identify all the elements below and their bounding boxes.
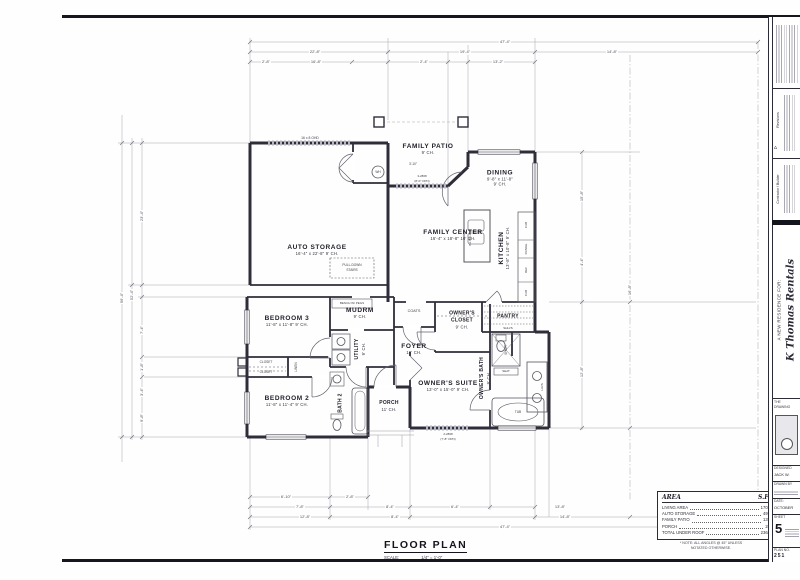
revision-delta-icon: Δ — [774, 145, 777, 150]
dim-label: 9'-8" — [140, 413, 145, 423]
sheet-number: 5 — [775, 521, 782, 536]
pulldown-stairs-label-2: STAIRS — [346, 268, 357, 272]
area-table-header: AREA S.F. — [662, 494, 770, 503]
walls — [238, 143, 549, 437]
designed-label: DESIGNED — [774, 467, 792, 471]
porch-steps — [366, 431, 414, 447]
titleblock-divider — [772, 398, 800, 399]
titleblock-divider — [772, 158, 800, 159]
room-label-owners-suite: OWNER'S SUITE 13'-0" x 15'-0" 9' CH. — [418, 380, 478, 392]
blueprint-sheet: AUTO STORAGE 16'-4" x 22'-8" 9' CH. FAMI… — [0, 0, 800, 580]
dim-label: 15'-8" — [580, 190, 585, 202]
room-label-bedroom2: BEDROOM 2 11'-8" x 11'-4" 9' CH. — [265, 395, 310, 407]
dim-label: 56'-4" — [120, 292, 125, 304]
patio-door-label: 3-2868 — [417, 174, 426, 178]
room-label-owners-bath: OWNER'S BATH 9' CH. — [479, 357, 491, 399]
lavs-label: LAVS — [540, 383, 544, 390]
dimension-lines — [118, 38, 758, 530]
room-label-pantry: PANTRY — [497, 314, 519, 321]
dim-label: 19'-4" — [459, 50, 471, 55]
room-label-bedroom3: BEDROOM 3 11'-8" x 11'-8" 9' CH. — [265, 315, 310, 327]
water-heater-label: WH — [375, 170, 380, 174]
sheet-border-top — [62, 15, 800, 18]
dim-label: 2'-8" — [261, 60, 271, 65]
room-label-utility: UTILITY 9' CH. — [354, 339, 366, 360]
closet-label-1: CLOSET — [260, 360, 273, 364]
brand-line2: DRAWING — [774, 406, 790, 410]
sheet-label: SHEET — [774, 516, 785, 520]
room-label-bath2: BATH 2 — [338, 393, 345, 413]
titleblock-thick-divider — [772, 220, 800, 225]
revisions-lines — [784, 95, 796, 151]
room-label-family-center: FAMILY CENTER 16'-4" x 18'-8" 10' CH. — [423, 229, 482, 241]
titleblock-divider — [772, 88, 800, 89]
island-label: ISL BELOW — [468, 230, 472, 246]
seat-label: SEAT — [502, 369, 510, 373]
room-label-mudrm: MUDRM 9' CH. — [346, 307, 374, 319]
room-label-foyer: FOYER 10' CH. — [401, 343, 426, 355]
page-title: FLOOR PLAN — [384, 539, 467, 553]
disclaimer-text-block — [776, 25, 798, 83]
dim-label: 12'-8" — [299, 515, 311, 520]
scale-value: 1/4" = 1'-0" — [421, 555, 442, 560]
cab-label-1: CAB — [524, 222, 528, 228]
dim-label: 13'-2" — [492, 60, 504, 65]
dim-label: 6'-10" — [280, 495, 292, 500]
room-label-kitchen: KITCHEN 13'-8" x 10'-8" 9' CH. — [498, 227, 510, 270]
dim-label: 22'-8" — [309, 50, 321, 55]
linen-label: LINEN — [294, 362, 298, 371]
dim-label: 3'-4" — [140, 387, 145, 397]
dim-label: 2'-8" — [345, 495, 355, 500]
area-header-name: AREA — [662, 494, 681, 501]
coats-label: COATS — [408, 309, 421, 313]
dim-label: 47'-4" — [499, 525, 511, 530]
dim-label: 7'-4" — [140, 325, 145, 335]
pulldown-stairs-label-1: PULL-DOWN — [342, 263, 361, 267]
dim-label: 1'-8" — [140, 362, 145, 372]
closet-label-2: CLOSET — [260, 370, 273, 374]
date-label: DATE: — [774, 500, 784, 504]
scale-label: SCALE: — [384, 555, 399, 560]
room-label-auto-storage: AUTO STORAGE 16'-4" x 22'-8" 9' CH. — [287, 244, 346, 256]
area-table: AREA S.F. LIVING AREA1702 AUTO STORAGE49… — [657, 491, 775, 540]
angles-note: * NOTE: ALL ANGLES @ 45° UNLESS NOTATED … — [652, 541, 770, 550]
dim-label: 14'-8" — [559, 515, 571, 520]
patio-depth-dim: 3'-10" — [409, 162, 417, 166]
dim-label: 12'-8" — [580, 366, 585, 378]
bench-label: BENCH W/ PEGS — [340, 301, 364, 305]
cab-label-2: CAB — [524, 290, 528, 296]
ref-label: REF — [524, 267, 528, 273]
plan-number-value: 251 — [774, 554, 785, 558]
dimension-ticks — [120, 40, 760, 529]
drawn-by-value-illegible — [774, 490, 798, 495]
dim-label: 4'-4" — [580, 257, 585, 267]
dim-label: 52'-4" — [130, 289, 135, 301]
designed-value: JACK W. — [774, 473, 790, 477]
dim-label: 16'-8" — [628, 284, 633, 296]
doors — [310, 154, 502, 410]
contractor-lines — [784, 165, 796, 213]
door-openings — [312, 152, 502, 410]
dim-label: 13'-8" — [554, 505, 566, 510]
dim-label: 16'-8" — [310, 60, 322, 65]
suite-window-label: 2-2868 — [443, 432, 452, 436]
room-label-porch: PORCH 11' CH. — [379, 400, 399, 412]
suite-window-opening-label: (7'-8" OPN) — [440, 437, 455, 441]
drawn-by-label: DRAWN BY — [774, 483, 792, 487]
dim-label: 23'-4" — [140, 210, 145, 222]
dim-label: 7'-8" — [295, 505, 305, 510]
table-row: TOTAL UNDER ROOF2364 — [662, 530, 770, 536]
residence-for-label: A NEW RESIDENCE FOR: — [777, 280, 782, 341]
dim-label: 8'-4" — [385, 505, 395, 510]
sheet-of-illegible — [785, 529, 799, 537]
titleblock: Revisions Δ Contractor / Builder A NEW R… — [768, 17, 800, 562]
room-label-family-patio: FAMILY PATIO 9' CH. — [402, 143, 453, 155]
tub-label: TUB — [515, 410, 521, 414]
patio-door-opening-label: (8'-0" OPN) — [414, 179, 429, 183]
garage-door-label: 16 x 8 OHD — [301, 136, 319, 140]
dim-label: 6'-4" — [450, 505, 460, 510]
drawing-title-block: FLOOR PLAN SCALE: 1/4" = 1'-0" — [384, 535, 467, 560]
logo-circle-icon — [781, 438, 793, 450]
date-value: OCTOBER — [774, 506, 793, 510]
shower-label: SHWR — [504, 345, 508, 355]
dim-label: 47'-4" — [499, 40, 511, 45]
shelves-label: SHLVS — [503, 326, 513, 330]
client-name: K Thomas Rentals — [786, 259, 797, 361]
fixtures — [249, 166, 547, 434]
dim-label: 14'-8" — [606, 50, 618, 55]
revisions-label: Revisions — [776, 112, 780, 128]
range-label: RANGE — [524, 244, 528, 255]
room-label-owners-closet: OWNER'S CLOSET 9' CH. — [445, 311, 479, 330]
designer-logo — [775, 415, 798, 455]
dim-label: 2'-4" — [419, 60, 429, 65]
contractor-label: Contractor / Builder — [776, 174, 780, 203]
dim-label: 8'-4" — [390, 515, 400, 520]
room-label-dining: DINING 9'-8" x 11'-8" 9' CH. — [487, 170, 513, 187]
